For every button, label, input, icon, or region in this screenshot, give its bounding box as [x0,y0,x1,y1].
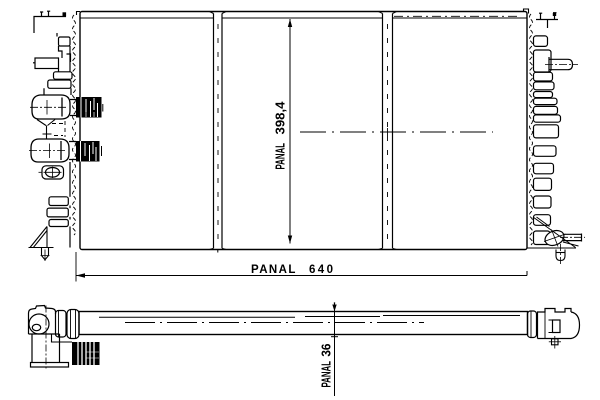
svg-text:PANAL: PANAL [319,361,334,388]
svg-text:36: 36 [319,344,334,357]
svg-text:640: 640 [309,264,335,276]
svg-text:398,4: 398,4 [273,101,288,135]
svg-text:PANAL: PANAL [251,264,297,276]
svg-text:PANAL: PANAL [273,143,288,170]
